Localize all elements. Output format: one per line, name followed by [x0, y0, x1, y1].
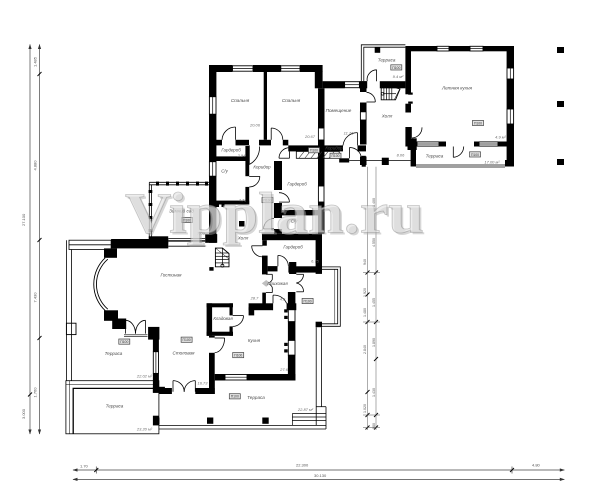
svg-text:П100: П100	[331, 154, 339, 158]
svg-text:9.4 м²: 9.4 м²	[393, 74, 404, 79]
svg-text:16.73: 16.73	[197, 381, 208, 386]
svg-text:1.485: 1.485	[33, 56, 38, 67]
svg-text:6.75: 6.75	[311, 259, 320, 264]
svg-text:Спальня: Спальня	[282, 98, 301, 103]
svg-text:П100: П100	[231, 395, 239, 399]
svg-text:17.00 м²: 17.00 м²	[484, 160, 500, 165]
svg-text:11.71: 11.71	[344, 131, 354, 136]
svg-text:С/у: С/у	[221, 169, 228, 174]
svg-text:П100: П100	[304, 299, 312, 303]
svg-text:940: 940	[363, 259, 367, 265]
svg-text:8.06: 8.06	[397, 153, 406, 158]
svg-text:22.87 м²: 22.87 м²	[297, 407, 314, 412]
svg-text:Кухня: Кухня	[248, 338, 261, 343]
svg-text:Столовая: Столовая	[173, 351, 196, 356]
svg-text:Коридор: Коридор	[253, 165, 271, 170]
svg-text:Гардероб: Гардероб	[221, 148, 241, 153]
svg-text:Холл: Холл	[381, 114, 393, 119]
svg-text:1.455: 1.455	[372, 298, 376, 307]
svg-text:Терраса: Терраса	[105, 351, 123, 356]
svg-text:4.9 м²: 4.9 м²	[495, 135, 506, 140]
svg-text:1.920: 1.920	[363, 288, 367, 297]
svg-text:Терраса: Терраса	[247, 395, 265, 400]
svg-text:980: 980	[372, 423, 376, 429]
svg-text:27.100: 27.100	[21, 213, 26, 226]
svg-text:П100: П100	[474, 121, 482, 125]
svg-text:Летняя кухня: Летняя кухня	[441, 86, 472, 91]
svg-text:Гостиная: Гостиная	[160, 273, 182, 278]
svg-text:4.880: 4.880	[33, 160, 38, 171]
svg-text:1.70: 1.70	[80, 464, 89, 469]
svg-text:Прихожая: Прихожая	[267, 281, 288, 286]
svg-text:1.890: 1.890	[372, 338, 376, 347]
svg-text:3.000: 3.000	[21, 408, 26, 419]
svg-text:Терраса: Терраса	[378, 58, 396, 63]
svg-text:Терраса: Терраса	[106, 404, 124, 409]
svg-text:22.300: 22.300	[296, 463, 309, 468]
svg-text:Коридор: Коридор	[325, 146, 343, 151]
svg-text:1.480: 1.480	[363, 308, 367, 317]
svg-text:П100: П100	[471, 153, 479, 157]
svg-text:30.130: 30.130	[314, 473, 327, 478]
svg-text:П100: П100	[183, 338, 191, 342]
svg-text:Спальня: Спальня	[231, 98, 250, 103]
svg-text:4.80: 4.80	[532, 463, 541, 468]
svg-text:Vipplan.ru: Vipplan.ru	[125, 181, 424, 246]
svg-text:23.20 м²: 23.20 м²	[136, 427, 153, 432]
svg-text:1.020: 1.020	[363, 404, 367, 413]
svg-text:П100: П100	[120, 340, 128, 344]
svg-text:7.430: 7.430	[33, 292, 38, 303]
svg-text:Терраса: Терраса	[426, 154, 444, 159]
svg-text:27.6: 27.6	[279, 367, 289, 372]
svg-text:2.840: 2.840	[363, 345, 367, 354]
svg-text:П100: П100	[234, 354, 242, 358]
svg-text:Помещение: Помещение	[326, 108, 352, 113]
svg-text:2.94: 2.94	[237, 153, 247, 158]
svg-text:1.430: 1.430	[372, 388, 376, 397]
svg-text:Кладовая: Кладовая	[213, 316, 233, 321]
svg-text:П100: П100	[392, 66, 400, 70]
svg-text:20.67: 20.67	[304, 134, 316, 139]
svg-text:22.02 м²: 22.02 м²	[136, 374, 153, 379]
svg-text:1.760: 1.760	[33, 387, 38, 398]
svg-text:28.7: 28.7	[250, 296, 260, 301]
svg-text:П100: П100	[310, 149, 318, 153]
svg-text:20.06: 20.06	[249, 123, 261, 128]
svg-text:4.9: 4.9	[280, 297, 286, 302]
